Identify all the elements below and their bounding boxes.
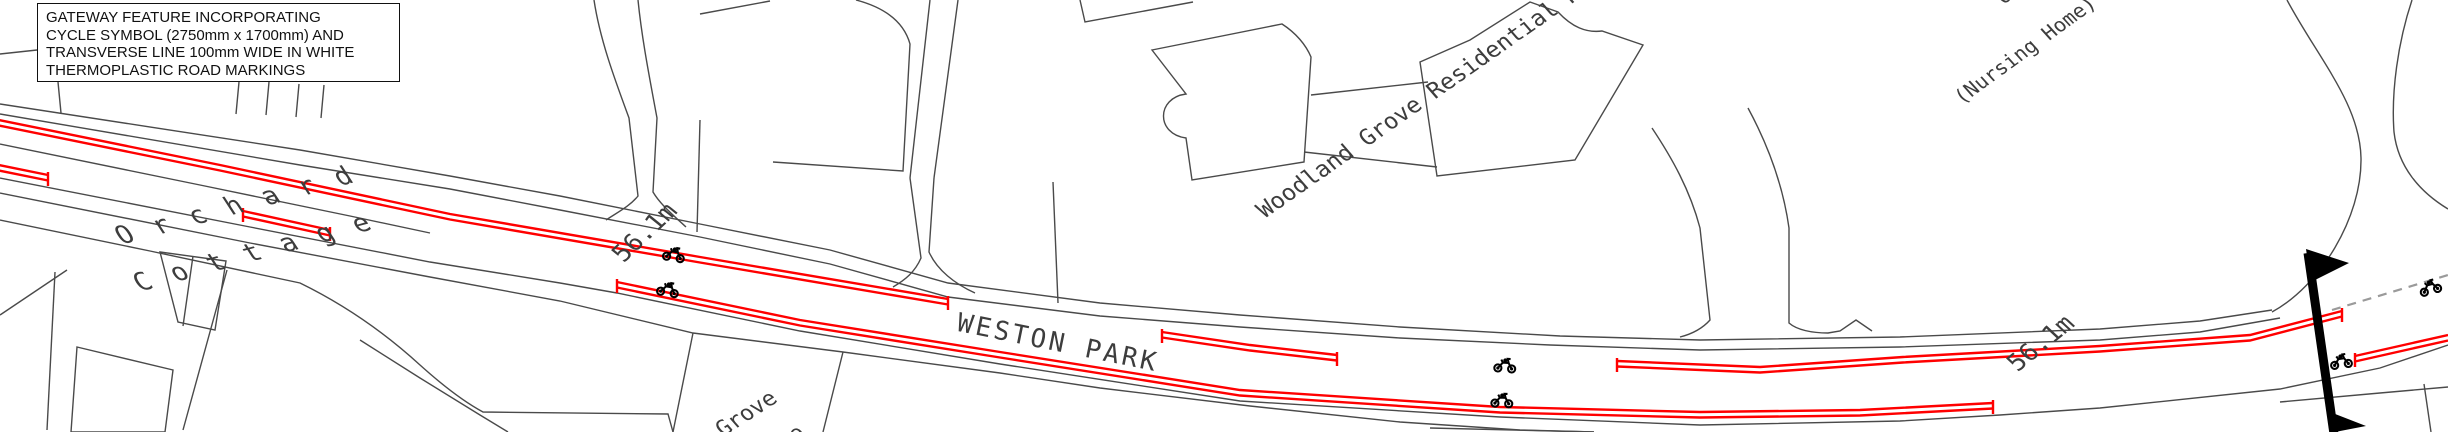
annotation-box-gateway-feature: GATEWAY FEATURE INCORPORATING CYCLE SYMB… [37, 3, 400, 82]
annotation-line: GATEWAY FEATURE INCORPORATING [46, 9, 391, 27]
cycle-symbol-icon [1494, 358, 1516, 373]
annotation-line: THERMOPLASTIC ROAD MARKINGS [46, 62, 391, 80]
cycle-symbol-icon [2418, 278, 2442, 297]
cycle-symbol-icon [1491, 393, 1513, 408]
road-scheme-plan: Orchard Cottage 56.1m WESTON PARK Woodla… [0, 0, 2448, 432]
cycle-symbols [656, 246, 2442, 408]
cycle-symbol-icon [2330, 353, 2353, 369]
annotation-line: TRANSVERSE LINE 100mm WIDE IN WHITE [46, 44, 391, 62]
section-marker-flag [2306, 249, 2366, 432]
annotation-line: CYCLE SYMBOL (2750mm x 1700mm) AND [46, 27, 391, 45]
